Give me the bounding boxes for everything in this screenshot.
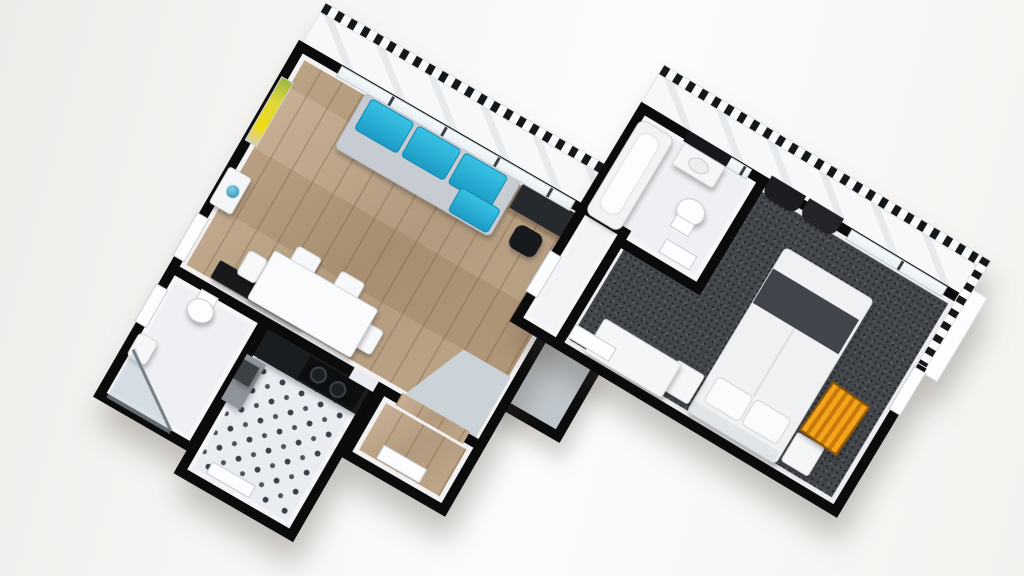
apartment-right-unit xyxy=(509,64,1003,525)
bed-dark-throw xyxy=(753,268,859,354)
duvet-fold xyxy=(753,328,796,398)
floorplan-scene xyxy=(0,0,1024,576)
